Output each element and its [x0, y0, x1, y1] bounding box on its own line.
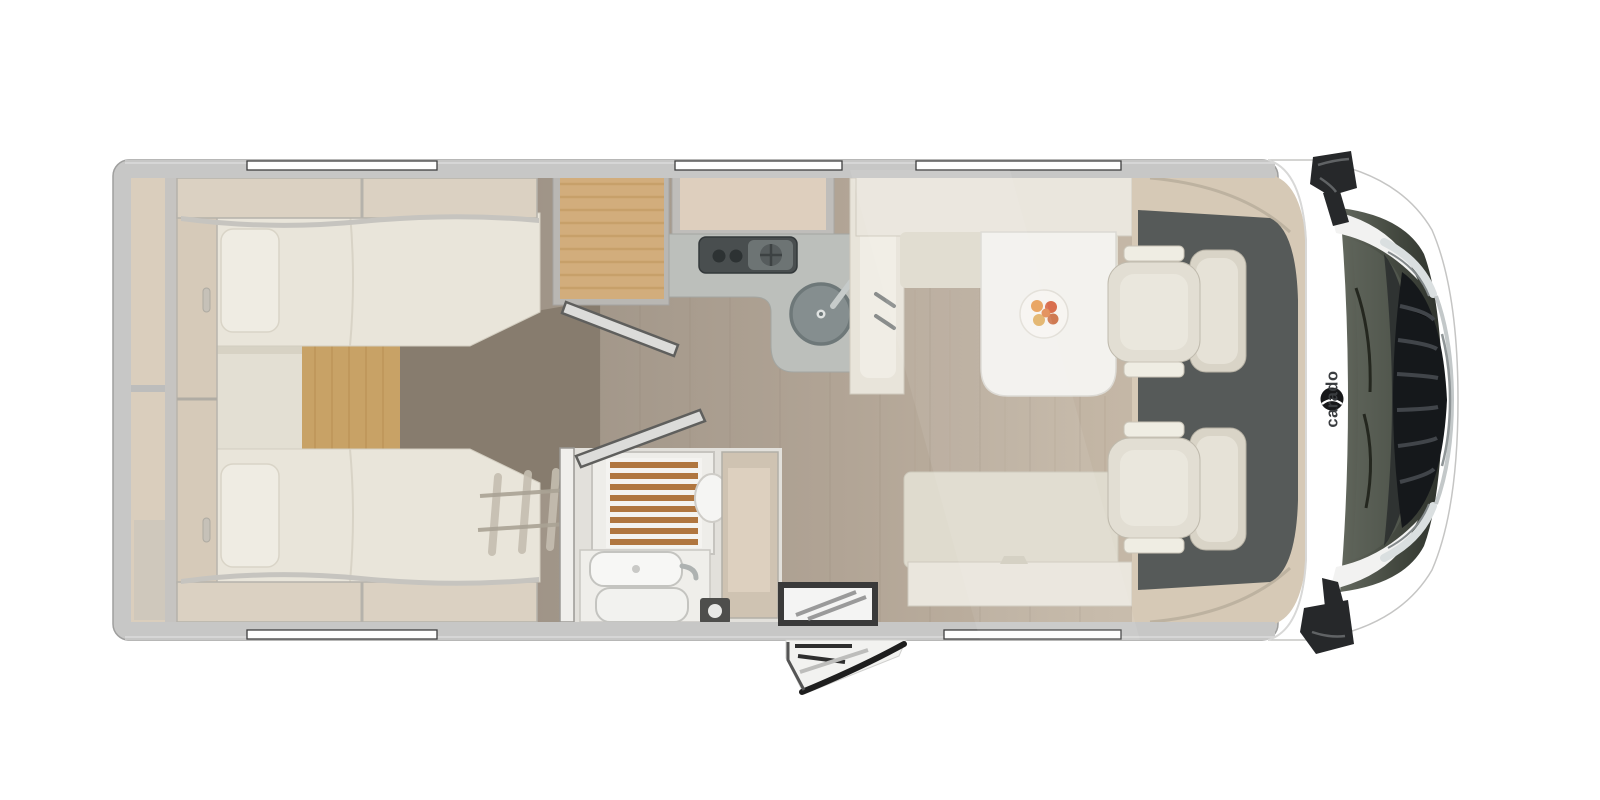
svg-text:carado: carado	[1324, 370, 1342, 427]
